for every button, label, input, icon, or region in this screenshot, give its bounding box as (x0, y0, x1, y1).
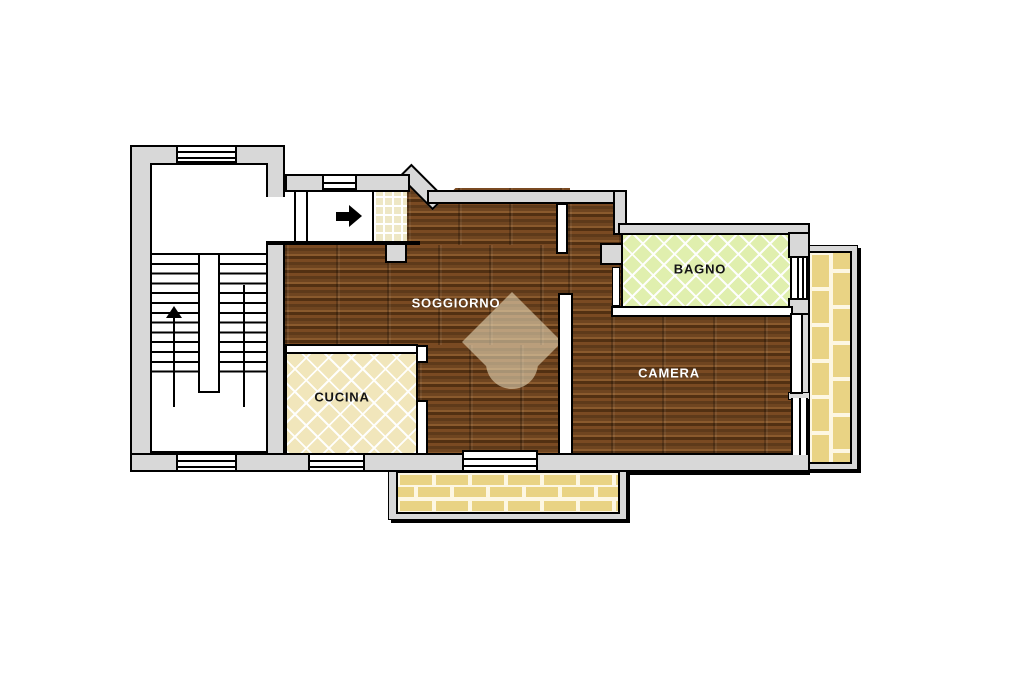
entrance-arrow-icon (349, 205, 362, 227)
soggiorno-french-door (462, 450, 538, 472)
entrance-door-line-1 (294, 190, 296, 241)
room-label-cucina: CUCINA (314, 390, 369, 405)
bagno-bottom-wall (611, 306, 793, 317)
bagno-balcony-window (790, 256, 808, 300)
stairs-direction-line-left (173, 316, 175, 407)
camera-right-wall (790, 313, 803, 394)
stairs-landing-edge (198, 391, 220, 393)
cucina-right-wall-top (416, 345, 428, 363)
stairwell-top-window (176, 145, 237, 163)
soggiorno-camera-wall (558, 293, 573, 455)
brick-pattern-horizontal (398, 473, 618, 512)
room-label-camera: CAMERA (638, 366, 700, 381)
bagno-left-pier (600, 243, 623, 265)
entrance-top-window (322, 174, 357, 190)
vestibule-pier (385, 243, 407, 263)
soggiorno-top-wall (427, 190, 620, 204)
bottom-wall-shadow (630, 470, 810, 475)
stairs-void-right-line (218, 253, 220, 393)
room-label-soggiorno: SOGGIORNO (412, 296, 501, 311)
bagno-top-wall (618, 223, 810, 235)
room-label-bagno: BAGNO (674, 262, 726, 277)
entry-vestibule-floor (372, 186, 407, 243)
watermark-house-logo-icon (440, 270, 600, 400)
stairs-direction-arrow-icon (166, 306, 182, 318)
stairs-direction-line-right (243, 285, 245, 407)
stairwell-door-opening (264, 197, 287, 241)
balcony-right-bricks (808, 251, 852, 464)
stairwell-bottom-window (176, 453, 237, 472)
camera-balcony-door (791, 398, 808, 455)
floorplan-canvas: SOGGIORNO CUCINA BAGNO CAMERA (0, 0, 1024, 682)
bagno-right-top-stub (788, 232, 810, 258)
balcony-bottom-bricks (396, 471, 620, 514)
stairs-void-left-line (198, 253, 200, 393)
balcony-right (802, 245, 858, 470)
entrance-bottom-wall (268, 241, 420, 245)
bagno-door-leaf (612, 267, 620, 306)
entrance-door-line-2 (306, 190, 308, 241)
cucina-window (308, 453, 365, 472)
stairs-top-edge (198, 253, 220, 255)
soggiorno-hall-wall (556, 203, 568, 254)
entrance-arrow-shaft (336, 212, 350, 221)
brick-pattern-vertical (810, 253, 850, 462)
cucina-right-wall-bottom (416, 400, 428, 455)
